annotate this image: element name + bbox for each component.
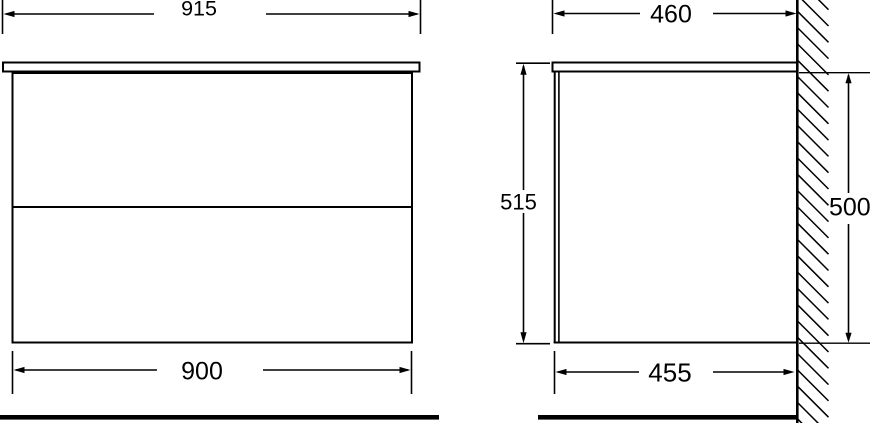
svg-text:900: 900 xyxy=(181,358,223,386)
svg-text:455: 455 xyxy=(648,357,691,387)
svg-text:460: 460 xyxy=(650,1,692,29)
svg-text:500: 500 xyxy=(829,193,870,221)
svg-text:515: 515 xyxy=(500,190,537,215)
svg-text:915: 915 xyxy=(181,0,217,20)
